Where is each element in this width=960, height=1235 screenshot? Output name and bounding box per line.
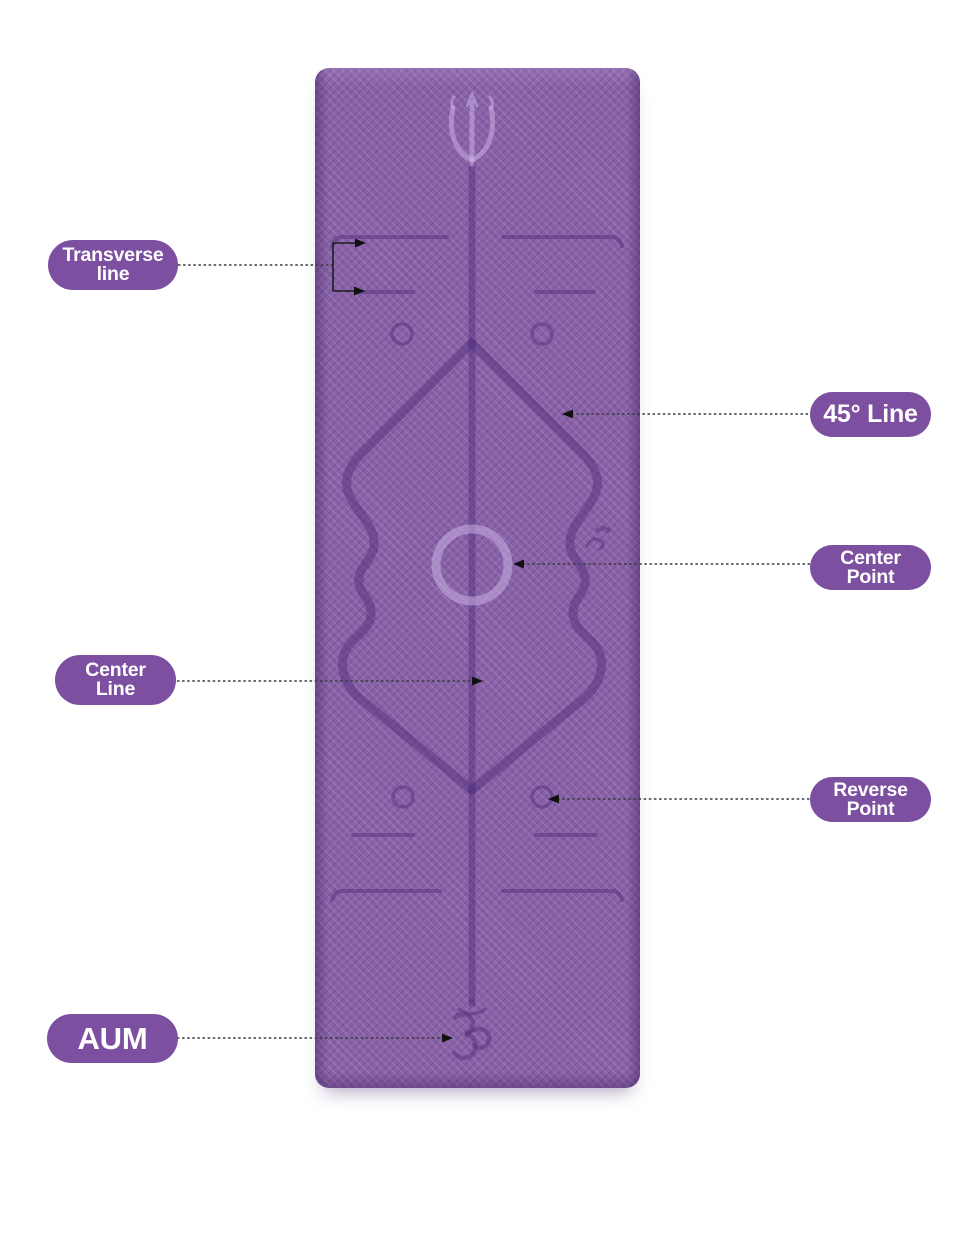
transverse-lines-bottom <box>332 835 622 900</box>
label-text: line <box>97 265 130 284</box>
yoga-mat <box>315 68 640 1088</box>
label-text: Reverse <box>833 781 908 800</box>
peacock-detail <box>587 527 609 549</box>
trident-icon <box>451 94 492 164</box>
label-center-point: Center Point <box>810 545 931 590</box>
label-45-line: 45° Line <box>810 392 931 437</box>
label-text: AUM <box>78 1024 148 1053</box>
label-text: Point <box>847 800 895 819</box>
label-text: 45° Line <box>823 403 918 427</box>
transverse-lines-top <box>332 237 622 292</box>
label-text: Center <box>840 549 901 568</box>
engraved-dark-lines <box>332 164 622 1058</box>
label-aum: AUM <box>47 1014 178 1063</box>
label-center-line: Center Line <box>55 655 176 705</box>
product-annotation-canvas: Transverse line 45° Line Center Point Ce… <box>0 0 960 1235</box>
label-text: Point <box>847 568 895 587</box>
mat-alignment-design <box>315 68 640 1088</box>
label-transverse-line: Transverse line <box>48 240 178 290</box>
label-text: Line <box>96 680 135 699</box>
label-reverse-point: Reverse Point <box>810 777 931 822</box>
